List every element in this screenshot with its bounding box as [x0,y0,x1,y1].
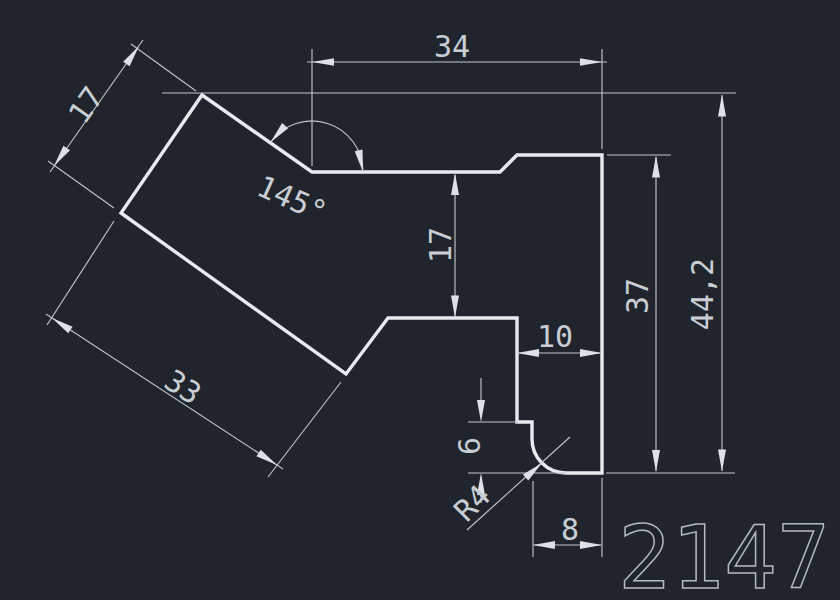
drawing-number: 2147 [618,506,830,600]
dim-value-fillet-radius: R4 [447,478,497,528]
dim-value-notch-depth: 17 [423,227,458,263]
extension-line [268,382,341,477]
dim-value-vertex-angle: 145° [252,168,332,229]
arrowhead-icon [477,400,485,422]
arrowhead-icon [652,156,660,178]
arrowhead-icon [54,146,70,166]
dim-value-step-width: 10 [537,319,573,354]
dimension-notch-depth: 17 [423,173,460,318]
arrowhead-icon [451,296,459,318]
extension-line [48,161,114,208]
dimension-arm-width: 17 [48,40,196,208]
arrowhead-icon [580,349,602,357]
arrowhead-icon [517,349,539,357]
dimension-right-height: 37 [607,155,671,472]
arrowhead-icon [652,450,660,472]
arrowhead-icon [580,541,602,549]
dimension-arm-length: 33 [46,221,341,477]
arrowhead-icon [256,450,277,465]
arrowhead-icon [271,123,289,142]
arrowhead-icon [123,46,139,66]
dim-value-step-height: 6 [452,437,487,455]
arrowhead-icon [580,58,602,66]
dim-value-overall-height: 44,2 [685,258,720,330]
arrowhead-icon [312,58,334,66]
dim-value-arm-width: 17 [61,80,110,130]
arrowhead-icon [451,173,459,195]
dimension-step-width: 10 [517,319,602,358]
arrowhead-icon [533,541,555,549]
dimension-bottom-width: 8 [533,478,602,557]
arrowhead-icon [718,95,726,117]
extension-line [131,44,196,91]
arrowhead-icon [523,463,542,481]
extension-line [47,221,114,325]
cad-drawing: 34 17 145° 17 37 44,2 [0,0,840,600]
dim-value-bottom-width: 8 [561,512,579,547]
dim-value-arm-length: 33 [158,362,207,411]
dim-value-right-height: 37 [620,278,655,314]
dim-value-top-width: 34 [434,29,470,64]
arrowhead-icon [355,150,363,172]
arrowhead-icon [52,318,73,333]
dimension-vertex-angle: 145° [252,121,363,230]
arrowhead-icon [718,450,726,472]
dimension-top-width: 34 [307,29,607,167]
